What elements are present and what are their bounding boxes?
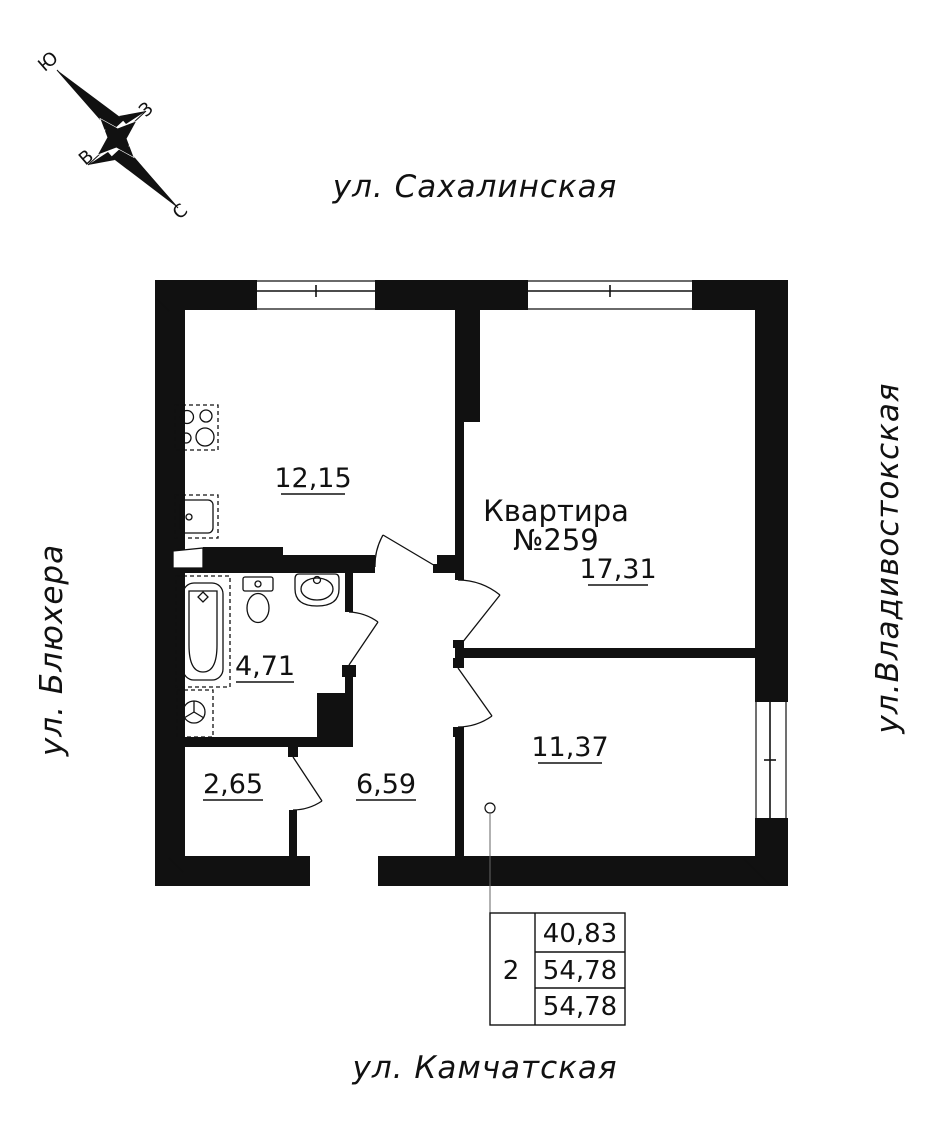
- window-living: [528, 280, 692, 310]
- window-kitchen: [257, 280, 375, 310]
- compass-label-east: В: [75, 146, 98, 170]
- kitchen-counter-mass: [203, 547, 283, 557]
- table-apartment-area: 54,78: [543, 956, 617, 986]
- table-rooms-count: 2: [503, 956, 520, 986]
- wall-storage-hall: [289, 810, 297, 856]
- wall-bottom-right: [378, 856, 788, 886]
- door-storage: [293, 757, 322, 810]
- street-label-top: ул. Сахалинская: [332, 169, 618, 205]
- wall-living-bedroom: [455, 648, 755, 658]
- wall-right-upper: [755, 280, 788, 702]
- area-hallway: 6,59: [356, 769, 416, 800]
- apartment-number: №259: [513, 523, 599, 557]
- window-bedroom: [755, 702, 788, 818]
- toilet: [243, 577, 273, 623]
- street-label-left: ул. Блюхера: [34, 544, 70, 757]
- area-kitchen: 12,15: [274, 463, 351, 494]
- wall-shaft-mass: [317, 693, 353, 737]
- street-label-right: ул.Владивостокская: [870, 382, 906, 734]
- kitchen-counter: [173, 548, 203, 568]
- compass-rose: Ю З В С: [34, 48, 192, 224]
- floorplan-canvas: Ю З В С ул. Сахалинская ул. Камчатская у…: [0, 0, 945, 1148]
- door-bathroom: [349, 612, 378, 665]
- wall-bath-hall-lower: [345, 677, 353, 693]
- labels: Квартира №259 12,15 17,31 4,71 2,65 6,59…: [203, 463, 657, 800]
- wall-column-kitchen-living: [455, 310, 480, 422]
- wall-kitchen-bath: [185, 555, 375, 573]
- wall-top-middle: [375, 280, 528, 310]
- table-living-area: 40,83: [543, 919, 617, 949]
- wall-bath-bottom: [185, 737, 353, 747]
- compass-needle-north: [111, 145, 178, 208]
- wash-basin: [295, 574, 339, 606]
- door-bedroom: [458, 668, 492, 727]
- summary: 2 40,83 54,78 54,78: [485, 803, 625, 1025]
- door-stop: [288, 747, 298, 757]
- door-stop: [453, 727, 464, 737]
- door-stop: [453, 658, 464, 668]
- interior-walls: [185, 310, 755, 856]
- area-living: 17,31: [579, 554, 656, 585]
- door-stop: [367, 564, 375, 573]
- leader-marker: [485, 803, 495, 813]
- wall-bath-hall-upper: [345, 573, 353, 612]
- area-bedroom: 11,37: [531, 732, 608, 763]
- compass-needle-south: [57, 70, 124, 132]
- wall-bottom-left: [155, 856, 310, 886]
- area-storage: 2,65: [203, 769, 263, 800]
- wall-hall-bedroom: [455, 737, 464, 856]
- door-living: [458, 580, 500, 648]
- wall-kitchen-living: [455, 422, 464, 580]
- door-stop: [342, 665, 356, 677]
- door-kitchen: [375, 535, 437, 567]
- street-label-bottom: ул. Камчатская: [351, 1050, 617, 1086]
- area-bathroom: 4,71: [235, 651, 295, 682]
- table-total-area: 54,78: [543, 992, 617, 1022]
